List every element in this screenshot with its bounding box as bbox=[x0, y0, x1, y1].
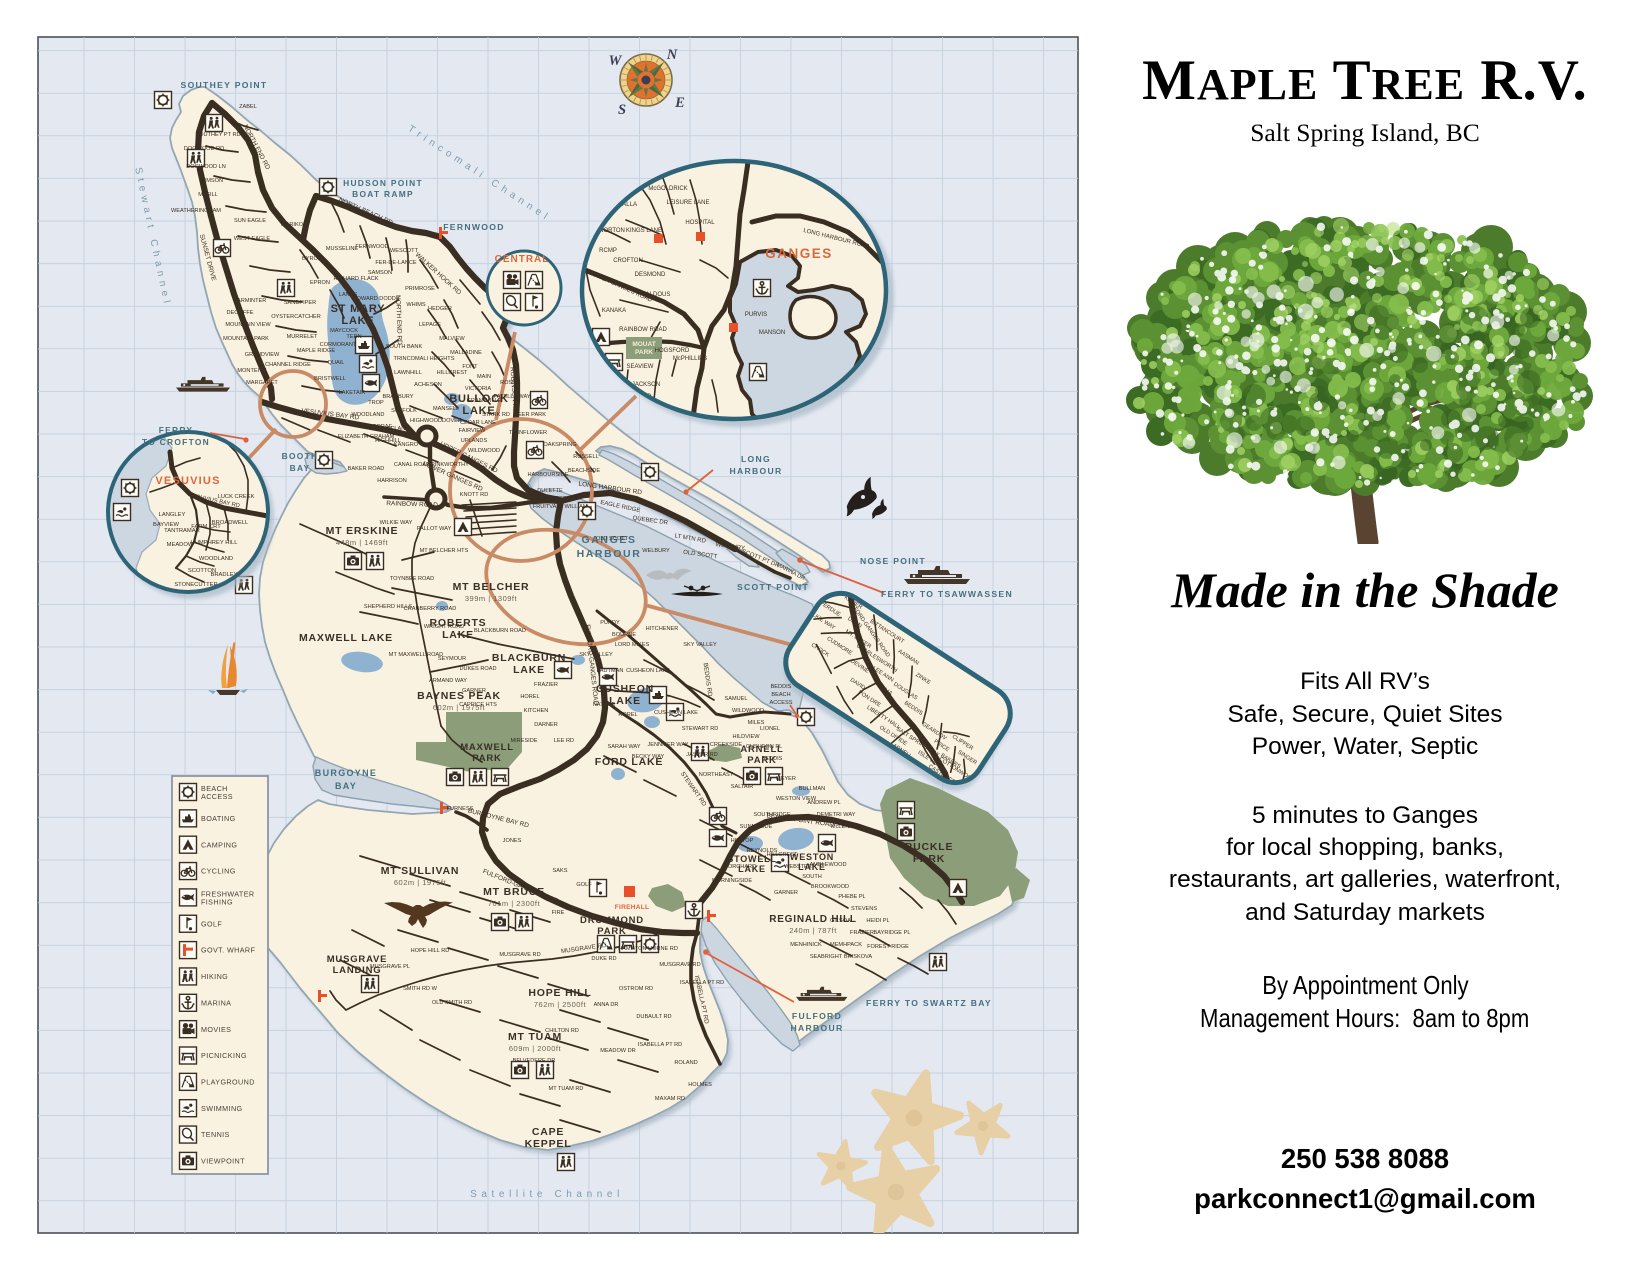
svg-text:HOREL: HOREL bbox=[618, 712, 637, 718]
svg-text:BLACKBURN: BLACKBURN bbox=[492, 652, 566, 664]
svg-text:SOUTH BANK: SOUTH BANK bbox=[386, 344, 423, 350]
svg-text:PICNICKING: PICNICKING bbox=[201, 1051, 247, 1060]
svg-text:BELVEDERE DR: BELVEDERE DR bbox=[513, 1058, 556, 1064]
svg-text:SEABRIGHT: SEABRIGHT bbox=[810, 954, 843, 960]
svg-text:CROFTON: CROFTON bbox=[613, 258, 643, 264]
svg-text:LAWNHILL: LAWNHILL bbox=[394, 370, 422, 376]
svg-text:MT ERSKINE: MT ERSKINE bbox=[326, 525, 399, 537]
svg-text:PLAYGROUND: PLAYGROUND bbox=[201, 1077, 255, 1086]
svg-text:LAKE: LAKE bbox=[341, 315, 374, 327]
svg-text:FIRE: FIRE bbox=[552, 910, 565, 916]
svg-text:CREEKSIDE: CREEKSIDE bbox=[710, 742, 743, 748]
svg-text:FERNWOOD: FERNWOOD bbox=[355, 244, 388, 250]
svg-text:MAXWELL LAKE: MAXWELL LAKE bbox=[299, 632, 393, 644]
svg-text:HITCHENER: HITCHENER bbox=[646, 626, 679, 632]
svg-text:BOATING: BOATING bbox=[201, 814, 236, 823]
svg-text:MORNINGSIDE: MORNINGSIDE bbox=[712, 878, 752, 884]
svg-text:SAKS: SAKS bbox=[553, 868, 568, 874]
svg-text:BLACKBURN ROAD: BLACKBURN ROAD bbox=[474, 628, 526, 634]
svg-text:GOLF: GOLF bbox=[201, 919, 222, 928]
svg-text:MT TUAM RD: MT TUAM RD bbox=[549, 1086, 584, 1092]
svg-text:WILDWOOD: WILDWOOD bbox=[732, 708, 764, 714]
svg-text:TROP: TROP bbox=[368, 400, 384, 406]
svg-text:240m | 787ft: 240m | 787ft bbox=[789, 926, 837, 935]
svg-text:609m | 2000ft: 609m | 2000ft bbox=[509, 1044, 562, 1053]
svg-text:762m | 2500ft: 762m | 2500ft bbox=[534, 1000, 587, 1009]
svg-text:DOVER: DOVER bbox=[442, 418, 462, 424]
svg-text:MENHINICK: MENHINICK bbox=[790, 942, 822, 948]
svg-text:DESMOND: DESMOND bbox=[635, 272, 666, 278]
svg-text:LANGLEY: LANGLEY bbox=[159, 512, 186, 518]
svg-text:CAPRICE HTS: CAPRICE HTS bbox=[459, 702, 497, 708]
svg-text:MEMHPACK: MEMHPACK bbox=[830, 942, 862, 948]
svg-text:NATALIE: NATALIE bbox=[593, 702, 616, 708]
svg-text:CUSHEON PL: CUSHEON PL bbox=[746, 744, 782, 750]
svg-text:MEADOW DR: MEADOW DR bbox=[600, 1048, 635, 1054]
svg-text:SOUTHEY POINT: SOUTHEY POINT bbox=[181, 80, 268, 90]
svg-text:PURDY: PURDY bbox=[600, 620, 620, 626]
svg-text:SHEPHERD HILLS: SHEPHERD HILLS bbox=[364, 604, 412, 610]
svg-text:KANGRO: KANGRO bbox=[394, 442, 419, 448]
svg-text:HARBOUR: HARBOUR bbox=[729, 466, 782, 476]
svg-text:DUKE RD: DUKE RD bbox=[591, 956, 616, 962]
svg-text:MUSGRAVE RD: MUSGRAVE RD bbox=[659, 962, 700, 968]
svg-text:BAKER ROAD: BAKER ROAD bbox=[348, 466, 385, 472]
svg-text:ACCESS: ACCESS bbox=[769, 700, 792, 706]
svg-text:BOAT RAMP: BOAT RAMP bbox=[352, 189, 414, 199]
svg-text:STEVENS: STEVENS bbox=[851, 906, 877, 912]
svg-text:BURGOYNE: BURGOYNE bbox=[315, 768, 377, 778]
svg-text:HUDSON POINT: HUDSON POINT bbox=[343, 178, 423, 188]
svg-text:MT BELCHER HTS: MT BELCHER HTS bbox=[420, 548, 469, 554]
svg-text:TERN: TERN bbox=[346, 334, 361, 340]
svg-text:BAY: BAY bbox=[335, 781, 357, 791]
svg-text:SIMSON: SIMSON bbox=[201, 178, 223, 184]
svg-text:MARIKO: MARIKO bbox=[281, 222, 304, 228]
svg-text:WRIGHT ROAD: WRIGHT ROAD bbox=[424, 624, 464, 630]
svg-text:BAYRIDGE PL: BAYRIDGE PL bbox=[874, 930, 911, 936]
svg-text:SUNNYSIDE: SUNNYSIDE bbox=[740, 824, 773, 830]
svg-text:BEACH: BEACH bbox=[771, 692, 790, 698]
svg-text:SOUTH: SOUTH bbox=[802, 874, 822, 880]
svg-text:CEDAR LANE: CEDAR LANE bbox=[460, 420, 496, 426]
svg-text:HARBOURSIDE: HARBOURSIDE bbox=[527, 472, 568, 478]
svg-text:TOYNBEE ROAD: TOYNBEE ROAD bbox=[390, 576, 434, 582]
svg-text:ACLAND: ACLAND bbox=[387, 426, 410, 432]
svg-text:GARNER: GARNER bbox=[462, 688, 486, 694]
svg-text:BEACHSIDE: BEACHSIDE bbox=[568, 468, 601, 474]
svg-text:MOVIES: MOVIES bbox=[201, 1025, 231, 1034]
svg-text:HUMPHREY HILL: HUMPHREY HILL bbox=[191, 540, 239, 546]
svg-text:HARBOUR: HARBOUR bbox=[577, 548, 642, 560]
svg-text:HEDGER: HEDGER bbox=[428, 306, 452, 312]
svg-text:KEPPEL: KEPPEL bbox=[525, 1138, 572, 1150]
svg-text:WHIMS: WHIMS bbox=[406, 302, 426, 308]
svg-text:HOWARD DODDS: HOWARD DODDS bbox=[352, 296, 399, 302]
svg-text:FONT: FONT bbox=[462, 364, 478, 370]
svg-text:MALLADINE: MALLADINE bbox=[450, 350, 482, 356]
svg-text:WEATHERINGHAM: WEATHERINGHAM bbox=[171, 208, 221, 214]
svg-text:CAPE: CAPE bbox=[532, 1126, 564, 1138]
svg-text:HARRISON: HARRISON bbox=[377, 478, 407, 484]
svg-text:SUFFOLK: SUFFOLK bbox=[391, 408, 417, 414]
svg-text:GILSOAL: GILSOAL bbox=[830, 918, 854, 924]
svg-text:GOLF: GOLF bbox=[576, 882, 592, 888]
svg-text:MURRELET: MURRELET bbox=[287, 334, 318, 340]
svg-text:FERRY TO SWARTZ BAY: FERRY TO SWARTZ BAY bbox=[866, 998, 992, 1008]
svg-text:VESUVIUS: VESUVIUS bbox=[155, 475, 220, 487]
svg-text:BRADBURY: BRADBURY bbox=[383, 394, 414, 400]
svg-text:PARK: PARK bbox=[597, 926, 626, 937]
svg-text:SWIMMING: SWIMMING bbox=[201, 1104, 243, 1113]
svg-text:BOOTH: BOOTH bbox=[282, 451, 319, 461]
svg-text:SOUTHRIDGE: SOUTHRIDGE bbox=[753, 812, 791, 818]
svg-text:DARNER: DARNER bbox=[534, 722, 558, 728]
svg-text:MT BELCHER: MT BELCHER bbox=[453, 581, 530, 593]
svg-text:LEE RD: LEE RD bbox=[554, 738, 574, 744]
svg-text:ARMAND WAY: ARMAND WAY bbox=[429, 678, 467, 684]
svg-text:JONES: JONES bbox=[503, 838, 522, 844]
svg-text:BAY: BAY bbox=[290, 463, 311, 473]
svg-text:ALDOUS: ALDOUS bbox=[646, 292, 671, 298]
svg-text:SKY VALLEY: SKY VALLEY bbox=[683, 642, 717, 648]
svg-text:PARMINTER: PARMINTER bbox=[234, 298, 267, 304]
svg-text:SUN EAGLE: SUN EAGLE bbox=[234, 218, 266, 224]
svg-text:CENTRAL: CENTRAL bbox=[495, 254, 550, 265]
svg-text:ORCHARD: ORCHARD bbox=[728, 864, 756, 870]
svg-text:GANGES: GANGES bbox=[765, 246, 833, 261]
svg-text:HILLTOP: HILLTOP bbox=[731, 838, 754, 844]
svg-text:MALVIEW: MALVIEW bbox=[439, 336, 465, 342]
svg-text:McGILL: McGILL bbox=[198, 192, 218, 198]
svg-text:VIEWPOINT: VIEWPOINT bbox=[201, 1157, 245, 1166]
svg-text:EPRON: EPRON bbox=[310, 280, 330, 286]
svg-text:MARGARET: MARGARET bbox=[246, 380, 278, 386]
svg-text:DRUMMOND: DRUMMOND bbox=[580, 915, 644, 926]
svg-text:701m | 2300ft: 701m | 2300ft bbox=[488, 899, 541, 908]
svg-text:RCMP: RCMP bbox=[599, 248, 617, 254]
svg-text:WESCOTT: WESCOTT bbox=[390, 248, 419, 254]
svg-text:FOREST RIDGE: FOREST RIDGE bbox=[867, 944, 909, 950]
svg-text:BRISKOVA: BRISKOVA bbox=[844, 954, 872, 960]
svg-text:ANNA DR: ANNA DR bbox=[594, 1002, 619, 1008]
svg-text:TRINCOMALI HEIGHTS: TRINCOMALI HEIGHTS bbox=[394, 356, 455, 362]
svg-text:MIRESIDE: MIRESIDE bbox=[510, 738, 537, 744]
svg-text:BROADWELL: BROADWELL bbox=[212, 520, 249, 526]
svg-text:ROLAND: ROLAND bbox=[674, 1060, 697, 1066]
svg-text:HOREL: HOREL bbox=[520, 694, 539, 700]
svg-text:CHANNEL RIDGE: CHANNEL RIDGE bbox=[265, 362, 311, 368]
svg-text:ROSS: ROSS bbox=[500, 380, 516, 386]
svg-text:ACHESON: ACHESON bbox=[414, 382, 442, 388]
svg-text:WILDWOOD: WILDWOOD bbox=[468, 448, 500, 454]
svg-text:MAPLE RIDGE: MAPLE RIDGE bbox=[297, 348, 336, 354]
svg-text:WILLIAM: WILLIAM bbox=[564, 504, 587, 510]
svg-text:HIGHWOOD: HIGHWOOD bbox=[410, 418, 442, 424]
svg-text:FERNWOOD: FERNWOOD bbox=[443, 222, 504, 232]
svg-text:MUSGRAVE PL: MUSGRAVE PL bbox=[370, 964, 410, 970]
svg-text:LAKETAIR: LAKETAIR bbox=[339, 390, 366, 396]
svg-text:BAYNES PEAK: BAYNES PEAK bbox=[417, 690, 501, 702]
svg-text:BRISTWELL: BRISTWELL bbox=[314, 376, 346, 382]
svg-text:FISHING: FISHING bbox=[201, 897, 233, 906]
svg-text:FRAZIER: FRAZIER bbox=[534, 682, 558, 688]
svg-text:FERRY: FERRY bbox=[159, 425, 194, 435]
svg-text:FERRY TO TSAWWASSEN: FERRY TO TSAWWASSEN bbox=[881, 589, 1013, 599]
svg-text:NORTON: NORTON bbox=[599, 228, 625, 234]
svg-text:ACCESS: ACCESS bbox=[201, 792, 233, 801]
svg-text:BRINKWORTHY: BRINKWORTHY bbox=[427, 462, 469, 468]
svg-text:SEAVIEW: SEAVIEW bbox=[627, 364, 654, 370]
svg-text:Satellite Channel: Satellite Channel bbox=[470, 1189, 624, 1200]
svg-text:SALTAIR: SALTAIR bbox=[731, 784, 753, 790]
svg-text:KINGS LANE: KINGS LANE bbox=[626, 228, 662, 234]
svg-text:CAMPING: CAMPING bbox=[201, 840, 237, 849]
svg-text:DECLIFFE: DECLIFFE bbox=[226, 310, 253, 316]
svg-text:TENNIS: TENNIS bbox=[201, 1130, 230, 1139]
svg-text:HAMILTON HORNE RD: HAMILTON HORNE RD bbox=[618, 946, 678, 952]
svg-text:OLD SCOTT: OLD SCOTT bbox=[596, 536, 629, 542]
svg-text:WELBURY: WELBURY bbox=[642, 548, 670, 554]
svg-text:DOGWOOD RD: DOGWOOD RD bbox=[184, 146, 224, 152]
svg-text:MONTEITH: MONTEITH bbox=[237, 368, 266, 374]
svg-text:OAKSPRING: OAKSPRING bbox=[543, 442, 576, 448]
svg-text:MT SULLIVAN: MT SULLIVAN bbox=[381, 865, 460, 877]
svg-text:RUSSELL: RUSSELL bbox=[573, 454, 599, 460]
svg-text:FURNESS: FURNESS bbox=[447, 806, 474, 812]
svg-text:HILLCREST: HILLCREST bbox=[767, 852, 798, 858]
svg-text:DEER PARK: DEER PARK bbox=[514, 412, 546, 418]
svg-text:UPLANDS: UPLANDS bbox=[461, 438, 488, 444]
svg-text:LEISURE LANE: LEISURE LANE bbox=[666, 200, 709, 206]
svg-text:SOUTHEY PT RD: SOUTHEY PT RD bbox=[195, 132, 240, 138]
svg-text:DUBAULT RD: DUBAULT RD bbox=[636, 1014, 671, 1020]
svg-text:HILDVIEW: HILDVIEW bbox=[732, 734, 760, 740]
svg-text:MAIN: MAIN bbox=[477, 374, 491, 380]
svg-text:PARK: PARK bbox=[472, 753, 501, 764]
svg-text:HOPE HILL: HOPE HILL bbox=[528, 987, 591, 999]
svg-text:BYRON: BYRON bbox=[302, 256, 322, 262]
svg-text:N: N bbox=[666, 47, 678, 63]
svg-text:STEWART RD: STEWART RD bbox=[682, 726, 719, 732]
svg-text:McPHILLIPS: McPHILLIPS bbox=[673, 356, 707, 362]
svg-text:LIONEL: LIONEL bbox=[760, 726, 780, 732]
svg-text:WEBSTER: WEBSTER bbox=[784, 864, 812, 870]
svg-text:ISABELLA PT RD: ISABELLA PT RD bbox=[680, 980, 724, 986]
svg-text:MARINA: MARINA bbox=[201, 998, 231, 1007]
svg-text:MANSON: MANSON bbox=[759, 330, 785, 336]
svg-text:BEDDIS: BEDDIS bbox=[771, 684, 792, 690]
svg-text:SMITH RD W: SMITH RD W bbox=[403, 986, 438, 992]
svg-text:BULLMAN: BULLMAN bbox=[799, 786, 825, 792]
svg-text:DEMETRI WAY: DEMETRI WAY bbox=[817, 812, 856, 818]
svg-text:CORMORANT: CORMORANT bbox=[320, 342, 357, 348]
svg-text:MOUAT: MOUAT bbox=[632, 341, 655, 348]
svg-text:GRANDVIEW: GRANDVIEW bbox=[245, 352, 280, 358]
svg-text:DULETTE: DULETTE bbox=[537, 488, 563, 494]
svg-text:TWINFLOWER: TWINFLOWER bbox=[509, 430, 547, 436]
svg-text:HOSPITAL: HOSPITAL bbox=[685, 220, 715, 226]
svg-text:JENNIFER WAY: JENNIFER WAY bbox=[647, 742, 688, 748]
svg-text:FAIRVIEW: FAIRVIEW bbox=[459, 428, 486, 434]
svg-text:NOSE POINT: NOSE POINT bbox=[860, 556, 926, 566]
svg-text:PEREGRINE: PEREGRINE bbox=[544, 496, 577, 502]
svg-text:MAXAM RD: MAXAM RD bbox=[655, 1096, 685, 1102]
svg-text:RICHARD FLACK: RICHARD FLACK bbox=[333, 276, 378, 282]
svg-text:LAUTMAN: LAUTMAN bbox=[597, 668, 624, 674]
svg-text:SEYMOUR: SEYMOUR bbox=[438, 656, 466, 662]
svg-text:FER-DE-LANCE: FER-DE-LANCE bbox=[375, 260, 417, 266]
svg-text:399m | 1309ft: 399m | 1309ft bbox=[465, 594, 518, 603]
svg-text:MEYER: MEYER bbox=[776, 776, 796, 782]
svg-text:LEPAGE: LEPAGE bbox=[419, 322, 441, 328]
svg-text:LAKE: LAKE bbox=[513, 664, 545, 676]
svg-text:S: S bbox=[618, 102, 626, 118]
svg-text:AMBLEWOOD: AMBLEWOOD bbox=[810, 862, 847, 868]
svg-text:LUCK CREEK: LUCK CREEK bbox=[217, 494, 254, 500]
svg-text:602m | 1975ft: 602m | 1975ft bbox=[394, 878, 447, 887]
svg-text:FULFORD: FULFORD bbox=[792, 1011, 842, 1021]
svg-text:MUSSELINE: MUSSELINE bbox=[326, 246, 359, 252]
svg-text:HOPE HILL RD: HOPE HILL RD bbox=[411, 948, 450, 954]
svg-text:BROOKWOOD: BROOKWOOD bbox=[811, 884, 849, 890]
svg-text:LONG: LONG bbox=[741, 454, 771, 464]
svg-text:VICTORIA: VICTORIA bbox=[465, 386, 492, 392]
svg-text:FRAZIER: FRAZIER bbox=[850, 930, 874, 936]
svg-text:GARNER: GARNER bbox=[774, 890, 798, 896]
svg-text:OYSTERCATCHER: OYSTERCATCHER bbox=[271, 314, 321, 320]
svg-text:KNOTT RD: KNOTT RD bbox=[460, 492, 489, 498]
svg-text:OSTROM RD: OSTROM RD bbox=[619, 986, 653, 992]
svg-text:MAXWELL: MAXWELL bbox=[460, 742, 514, 753]
svg-text:CYCLING: CYCLING bbox=[201, 867, 236, 876]
svg-text:DOGWOOD LN: DOGWOOD LN bbox=[186, 164, 225, 170]
svg-text:PARK: PARK bbox=[635, 349, 653, 356]
svg-text:SKY VALLEY: SKY VALLEY bbox=[579, 652, 613, 658]
svg-text:448m | 1469ft: 448m | 1469ft bbox=[336, 538, 389, 547]
svg-text:TO CROFTON: TO CROFTON bbox=[142, 437, 210, 447]
svg-text:HILLCREST: HILLCREST bbox=[437, 370, 468, 376]
svg-text:MANSELL: MANSELL bbox=[433, 406, 459, 412]
svg-text:CUSHEON: CUSHEON bbox=[596, 683, 654, 695]
svg-text:WOODLAND: WOODLAND bbox=[199, 556, 233, 562]
svg-text:McLENNAN: McLENNAN bbox=[831, 824, 861, 830]
svg-text:McGOLDRICK: McGOLDRICK bbox=[648, 186, 687, 192]
svg-text:CHILTON RD: CHILTON RD bbox=[545, 1028, 579, 1034]
svg-text:WOODLAND: WOODLAND bbox=[352, 412, 385, 418]
svg-text:CUSHEON LAKE: CUSHEON LAKE bbox=[654, 710, 698, 716]
svg-text:BECKY WAY: BECKY WAY bbox=[632, 754, 665, 760]
svg-text:OLD SMITH RD: OLD SMITH RD bbox=[432, 1000, 472, 1006]
svg-text:SCOTT POINT: SCOTT POINT bbox=[737, 582, 809, 592]
svg-text:SAMUEL: SAMUEL bbox=[724, 696, 747, 702]
svg-text:DUKES ROAD: DUKES ROAD bbox=[460, 666, 497, 672]
svg-text:MOUNTAIN PARK: MOUNTAIN PARK bbox=[223, 336, 269, 342]
svg-text:MUSGRAVE RD: MUSGRAVE RD bbox=[499, 952, 540, 958]
svg-text:GOVT. WHARF: GOVT. WHARF bbox=[201, 946, 256, 955]
svg-text:MT MAXWELL ROAD: MT MAXWELL ROAD bbox=[389, 652, 443, 658]
svg-text:FIREHALL: FIREHALL bbox=[615, 904, 650, 911]
svg-text:PHEBE PL: PHEBE PL bbox=[838, 894, 865, 900]
svg-text:PATELLA WAY: PATELLA WAY bbox=[493, 394, 530, 400]
svg-text:PARK: PARK bbox=[913, 853, 945, 865]
svg-text:KITCHEN: KITCHEN bbox=[524, 708, 549, 714]
svg-text:LAKE: LAKE bbox=[442, 629, 474, 641]
svg-text:PURVIS: PURVIS bbox=[745, 312, 767, 318]
svg-text:FRUITVALE: FRUITVALE bbox=[533, 504, 564, 510]
svg-text:STARK RD: STARK RD bbox=[482, 412, 510, 418]
svg-text:RAINBOW ROAD: RAINBOW ROAD bbox=[619, 327, 667, 333]
svg-text:ST MARY: ST MARY bbox=[331, 303, 386, 315]
svg-text:RUCKLE: RUCKLE bbox=[905, 841, 954, 853]
svg-text:WILKIE WAY: WILKIE WAY bbox=[380, 520, 413, 526]
svg-text:ANDREW PL: ANDREW PL bbox=[807, 800, 840, 806]
svg-text:NORTHEAST: NORTHEAST bbox=[699, 772, 734, 778]
svg-text:ISABELLA PT RD: ISABELLA PT RD bbox=[638, 1042, 682, 1048]
svg-text:CUSHEON LAKE: CUSHEON LAKE bbox=[626, 668, 670, 674]
svg-text:SARAH WAY: SARAH WAY bbox=[608, 744, 641, 750]
svg-text:QUAIL: QUAIL bbox=[328, 360, 345, 366]
svg-text:PALLOT WAY: PALLOT WAY bbox=[417, 526, 452, 532]
svg-text:W: W bbox=[609, 53, 623, 69]
svg-text:E: E bbox=[674, 95, 685, 111]
svg-text:HEIDI PL: HEIDI PL bbox=[866, 918, 889, 924]
svg-text:BEDDIS: BEDDIS bbox=[762, 756, 783, 762]
svg-text:HIKING: HIKING bbox=[201, 972, 228, 981]
svg-text:SANDPIPER: SANDPIPER bbox=[284, 300, 316, 306]
svg-text:HARBOUR: HARBOUR bbox=[790, 1023, 843, 1033]
svg-text:MOUNTAIN VIEW: MOUNTAIN VIEW bbox=[225, 322, 271, 328]
svg-text:HOLMES: HOLMES bbox=[688, 1082, 712, 1088]
svg-text:BOURNE: BOURNE bbox=[612, 632, 636, 638]
svg-text:JASPER RD: JASPER RD bbox=[686, 752, 717, 758]
svg-text:CANAL ROAD: CANAL ROAD bbox=[394, 462, 430, 468]
svg-text:HOGSFORD: HOGSFORD bbox=[655, 348, 690, 354]
svg-text:KANAKA: KANAKA bbox=[602, 308, 626, 314]
svg-text:WEST EAGLE: WEST EAGLE bbox=[234, 236, 271, 242]
svg-text:PRIMROSE: PRIMROSE bbox=[405, 286, 435, 292]
svg-text:LORD MIKES: LORD MIKES bbox=[615, 642, 650, 648]
svg-text:ZABEL: ZABEL bbox=[239, 104, 257, 110]
